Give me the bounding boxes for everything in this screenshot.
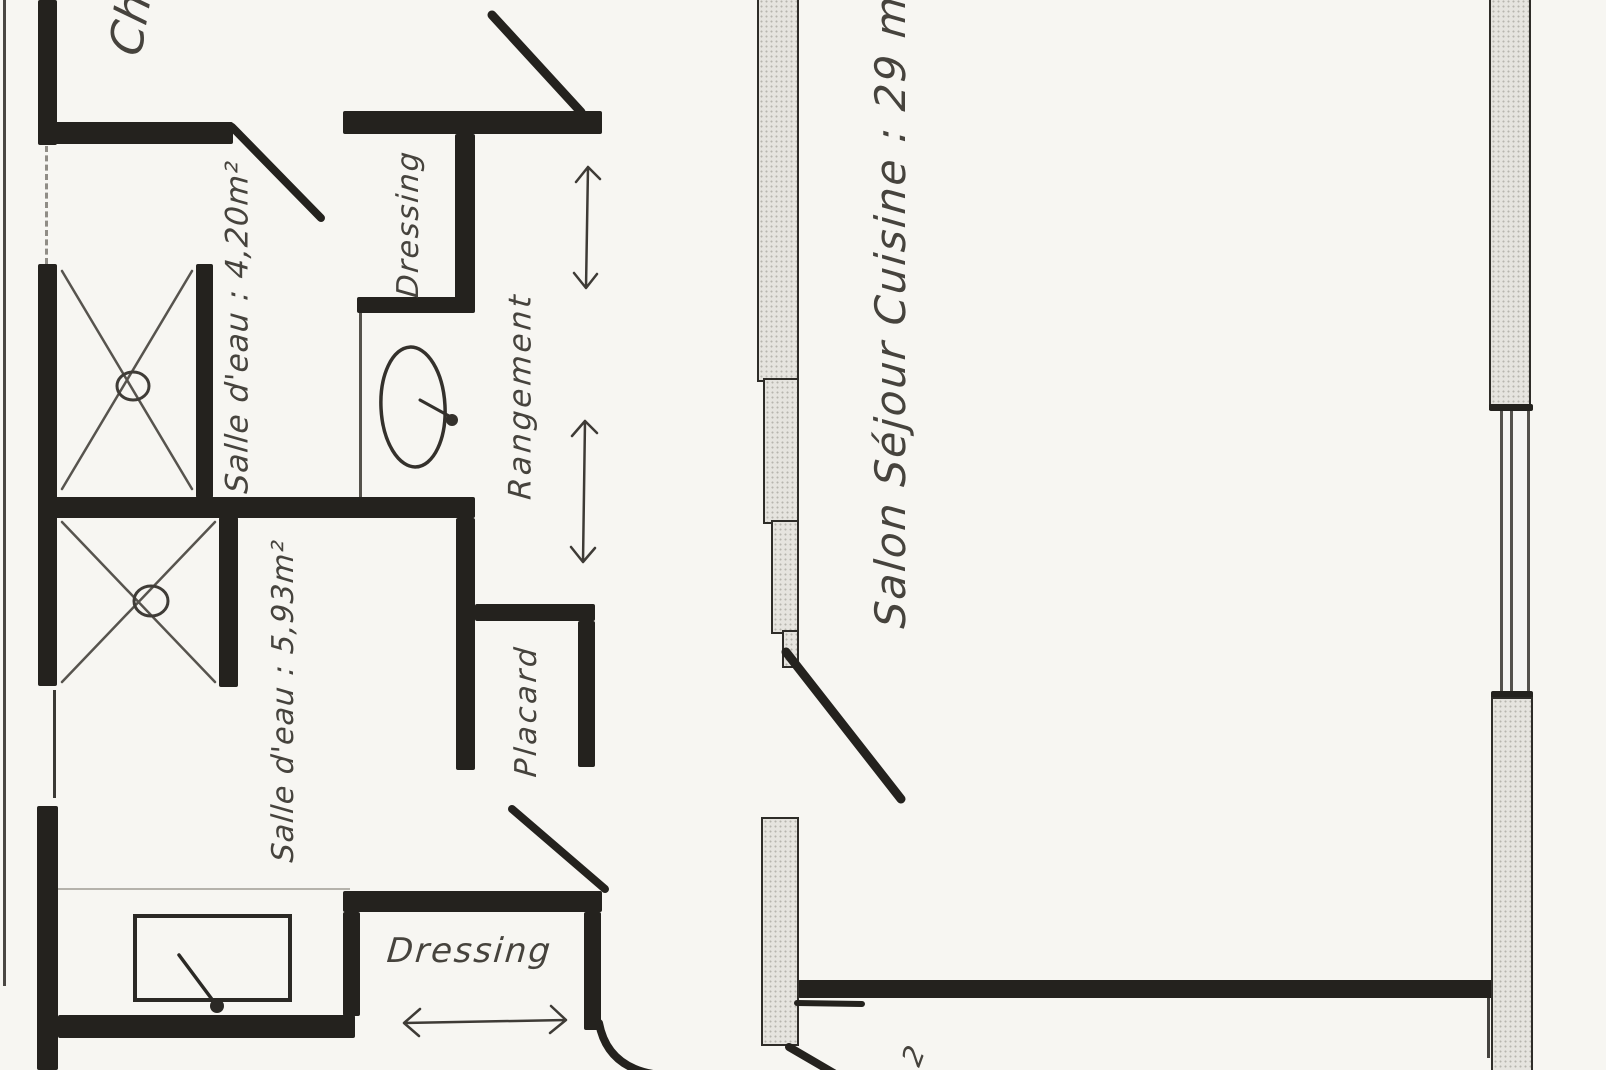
room-label-dressing-top: Dressing	[394, 149, 424, 299]
door-arc-icon	[599, 1023, 653, 1070]
shower-tray-icon	[62, 522, 215, 682]
washbasin-icon	[378, 345, 448, 468]
washbasin-tap-icon	[446, 414, 458, 426]
double-arrow-icon	[574, 167, 600, 288]
door-swing-icon	[789, 1047, 849, 1070]
door-swing-icon	[786, 652, 901, 799]
bathtub-tap-icon	[179, 955, 214, 1002]
room-label-rangement: Rangement	[506, 291, 537, 501]
room-label-salle-eau-1: Salle d'eau : 4,20m²	[223, 159, 254, 494]
room-label-salon: Salon Séjour Cuisine : 29 m²	[870, 0, 912, 630]
shower-drain-icon	[117, 372, 149, 400]
door-swing-icon	[492, 15, 581, 112]
door-swing-icon	[512, 809, 605, 889]
room-label-salle-eau-2: Salle d'eau : 5,93m²	[269, 538, 299, 863]
room-label-placard: Placard	[512, 644, 542, 779]
double-arrow-icon	[404, 1006, 566, 1036]
double-arrow-icon	[571, 421, 597, 562]
floorplan-canvas: Ch Salle d'eau : 4,20m² Dressing Rangeme…	[0, 0, 1606, 1070]
shower-tray-icon	[62, 271, 192, 489]
bathtub-tap-icon	[210, 999, 224, 1013]
wall-hook-mark	[797, 1003, 862, 1004]
room-label-dressing-bottom: Dressing	[386, 934, 554, 968]
